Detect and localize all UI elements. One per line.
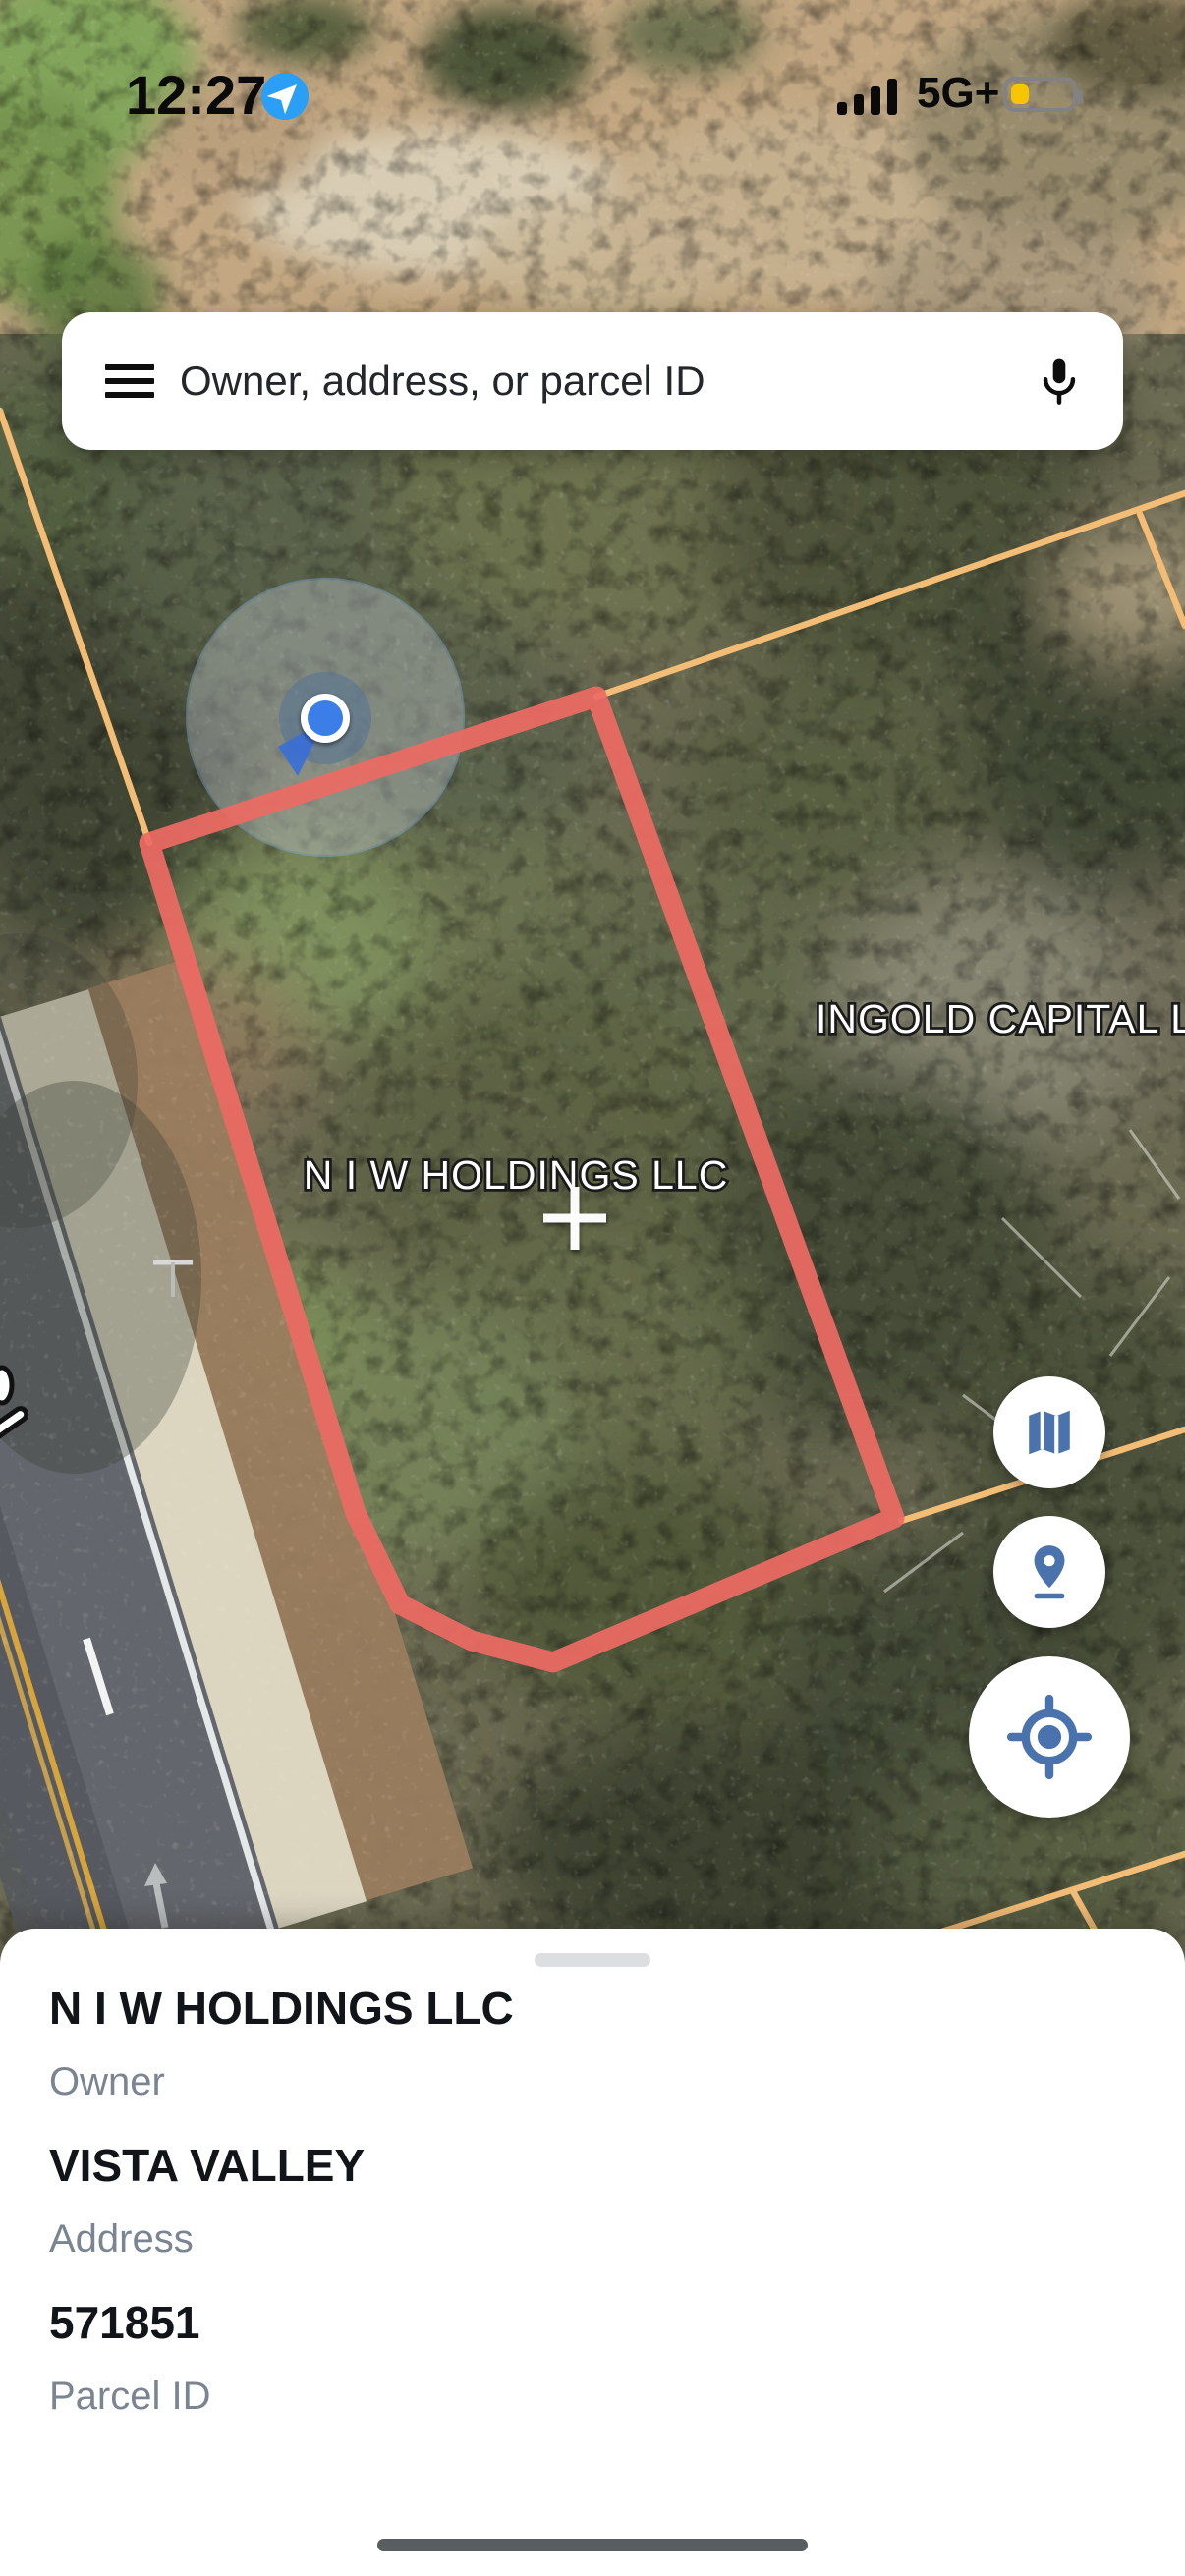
sheet-drag-handle[interactable] [535,1953,650,1967]
parcel-pin-button[interactable] [993,1516,1105,1628]
location-services-icon [260,72,310,121]
parcel-fields: N I W HOLDINGS LLC Owner VISTA VALLEY Ad… [49,1983,1185,2419]
search-input[interactable] [178,357,1033,406]
signal-bars-icon [837,77,908,116]
network-type: 5G+ [917,69,999,118]
owner-value: N I W HOLDINGS LLC [49,1983,1185,2034]
status-bar: 12:27 5G+ [0,0,1185,128]
home-indicator[interactable] [377,2539,808,2551]
parcel-id-value: 571851 [49,2297,1185,2348]
map-layers-icon [1021,1404,1078,1461]
hamburger-menu-icon[interactable] [105,357,154,406]
parcel-info-sheet[interactable]: N I W HOLDINGS LLC Owner VISTA VALLEY Ad… [0,1929,1185,2576]
field-parcel-id: 571851 Parcel ID [49,2297,1185,2419]
my-location-button[interactable] [969,1656,1130,1818]
address-value: VISTA VALLEY [49,2140,1185,2191]
battery-low-yellow-icon [1003,77,1077,112]
owner-label: Owner [49,2059,1185,2104]
field-address: VISTA VALLEY Address [49,2140,1185,2262]
my-location-icon [1006,1694,1093,1780]
map-layers-button[interactable] [993,1376,1105,1488]
parcel-id-label: Parcel ID [49,2374,1185,2419]
status-time: 12:27 [126,63,266,127]
app-screen: N I W HOLDINGS LLC INGOLD CAPITAL L 12:2… [0,0,1185,2576]
address-label: Address [49,2216,1185,2262]
map-adjacent-parcel-label: INGOLD CAPITAL L [816,996,1185,1041]
microphone-icon[interactable] [1033,349,1086,414]
search-bar[interactable] [62,312,1123,450]
field-owner: N I W HOLDINGS LLC Owner [49,1983,1185,2104]
parcel-pin-icon [1021,1543,1078,1600]
map-parcel-owner-label: N I W HOLDINGS LLC [304,1152,729,1198]
